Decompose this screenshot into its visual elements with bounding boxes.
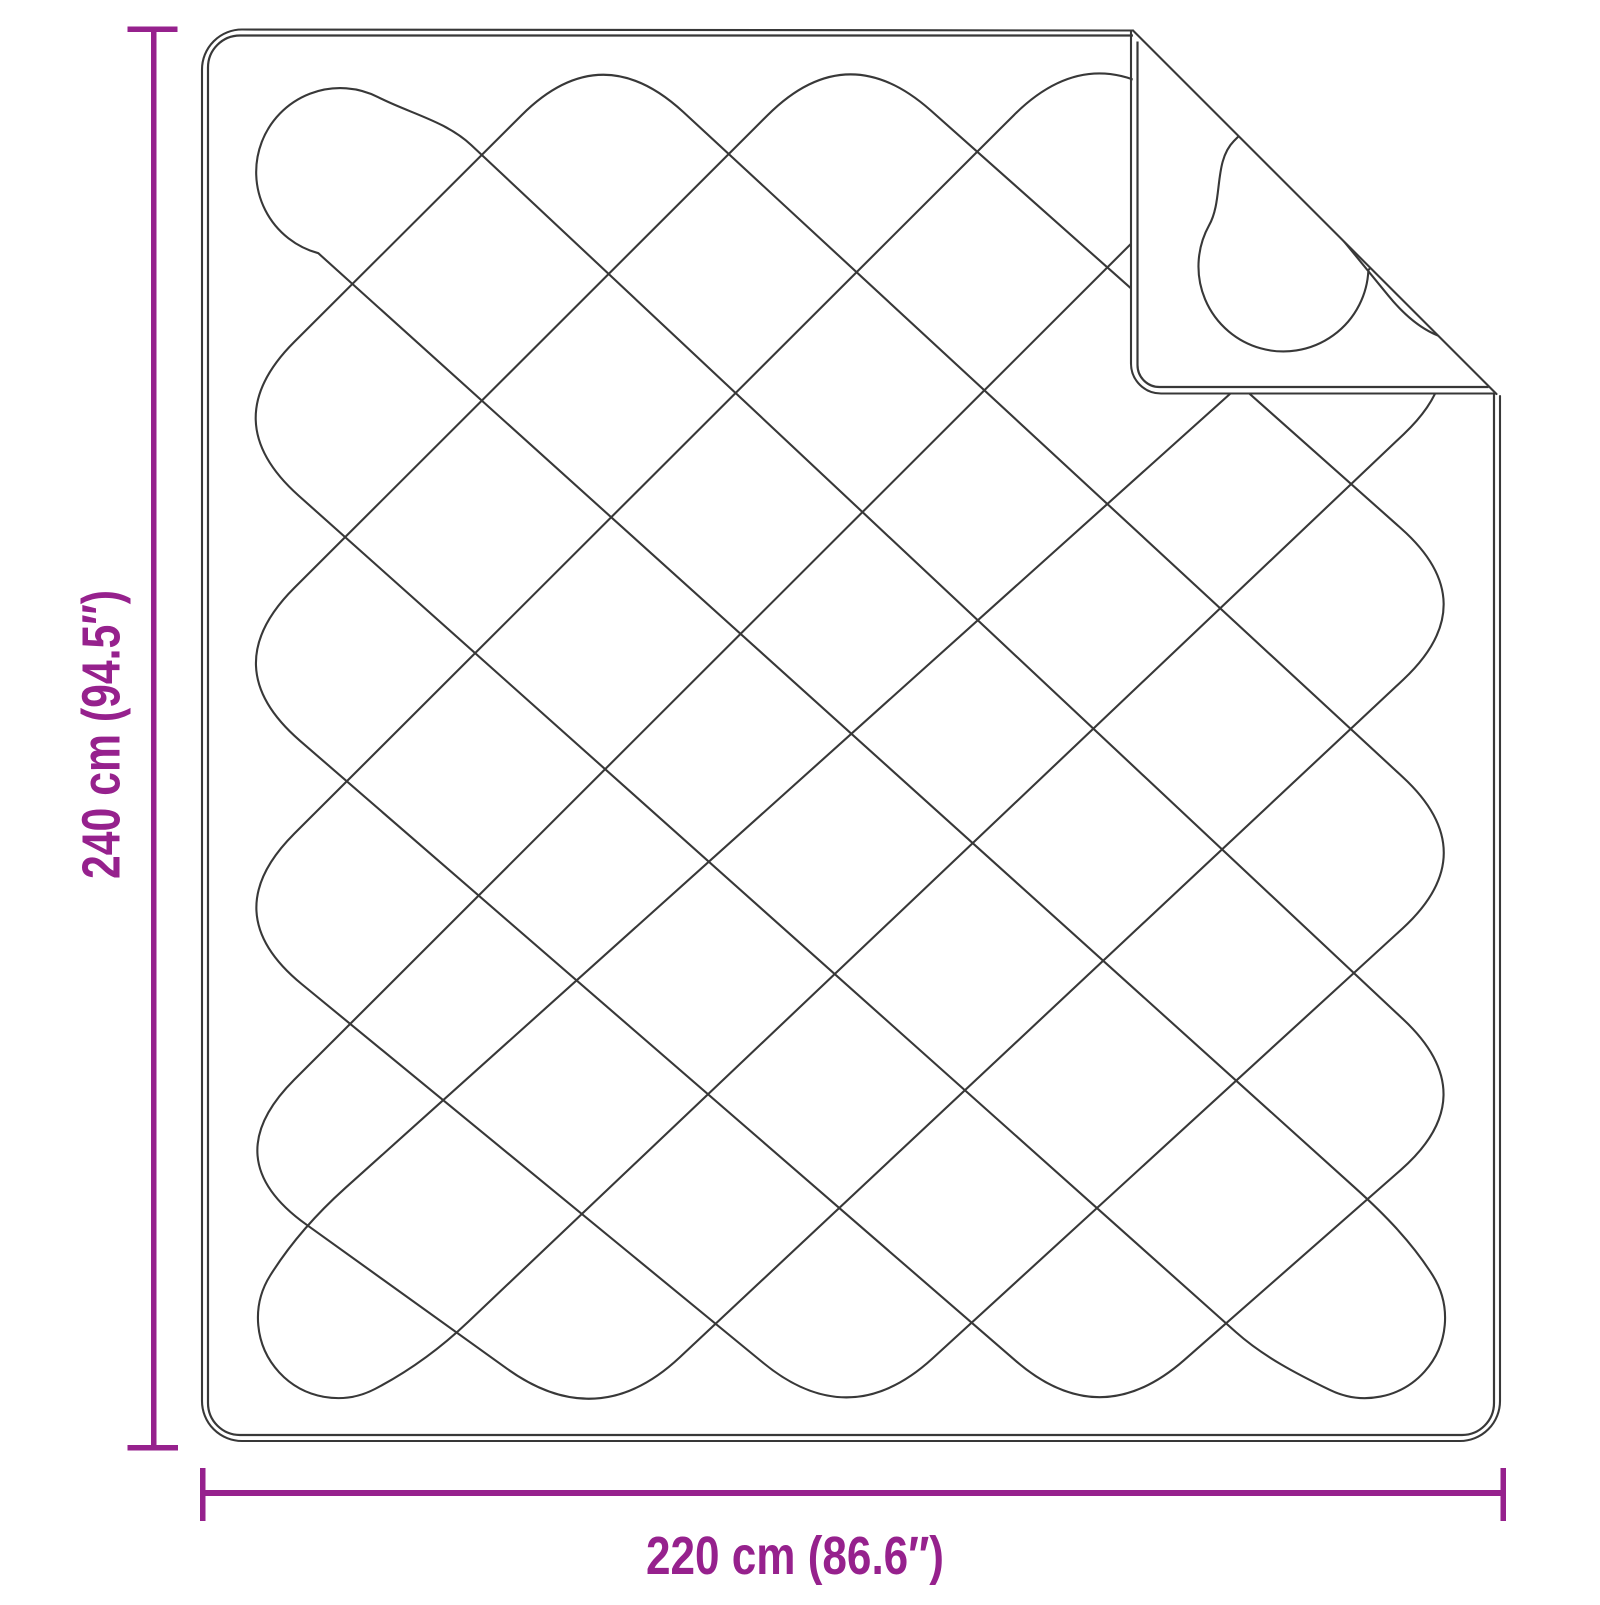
svg-text:240 cm (94.5″): 240 cm (94.5″) (72, 590, 132, 879)
svg-text:220 cm (86.6″): 220 cm (86.6″) (646, 1526, 944, 1586)
